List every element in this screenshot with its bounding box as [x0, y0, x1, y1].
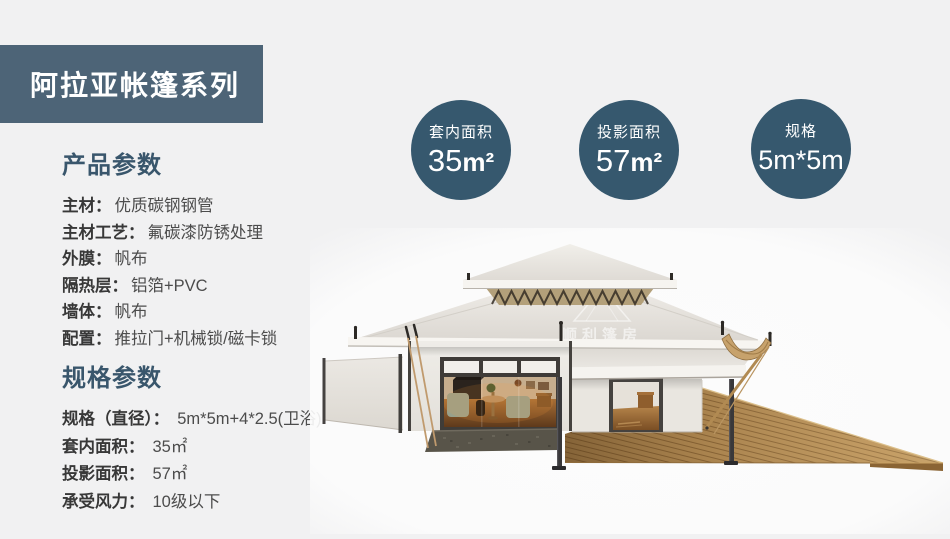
badge-specification: 规格 5m*5m [751, 99, 851, 199]
spec-params-heading: 规格参数 [62, 365, 342, 393]
param-value: 帆布 [115, 303, 148, 321]
tent-render-image: 顺利篷房 WELL TENT [310, 228, 950, 534]
param-label: 承受风力： [62, 493, 145, 511]
param-value: 35㎡ [153, 438, 188, 456]
parameters-panel: 产品参数 主材：优质碳钢钢管 主材工艺：氟碳漆防锈处理 外膜：帆布 隔热层：铝箔… [62, 152, 342, 516]
param-label: 套内面积： [62, 438, 145, 456]
tent-window [440, 357, 560, 431]
param-value: 帆布 [115, 250, 148, 268]
param-label: 配置： [62, 330, 112, 348]
tent-render-svg: 顺利篷房 WELL TENT [310, 228, 950, 534]
param-row: 外膜：帆布 [62, 246, 342, 273]
badge-unit: m² [630, 147, 662, 177]
param-value: 铝箔+PVC [131, 277, 208, 295]
param-row: 主材：优质碳钢钢管 [62, 193, 342, 220]
window-interior-scene [443, 376, 556, 427]
tent-side-wing [572, 378, 702, 432]
param-label: 主材工艺： [62, 224, 145, 242]
badge-label: 投影面积 [597, 123, 661, 143]
tent-side-panel [323, 354, 404, 433]
spec-row: 承受风力：10级以下 [62, 489, 342, 517]
badge-projection-area: 投影面积 57m² [579, 100, 679, 200]
badge-unit: m² [462, 147, 494, 177]
product-params-heading: 产品参数 [62, 152, 342, 180]
param-value: 氟碳漆防锈处理 [148, 224, 264, 242]
badge-value: 35m² [428, 143, 494, 180]
badge-number: 5m*5m [758, 145, 844, 175]
product-page: { "page": {"background": "#f1f1f2"}, "ba… [0, 0, 950, 534]
badge-value: 5m*5m [758, 142, 844, 178]
badge-number: 35 [428, 143, 462, 178]
badge-inner-area: 套内面积 35m² [411, 100, 511, 200]
series-title-banner: 阿拉亚帐篷系列 [0, 45, 263, 123]
param-row: 隔热层：铝箔+PVC [62, 273, 342, 300]
param-value: 10级以下 [153, 493, 221, 511]
param-value: 推拉门+机械锁/磁卡锁 [115, 330, 278, 348]
param-label: 投影面积： [62, 465, 145, 483]
param-label: 主材： [62, 197, 112, 215]
param-label: 规格（直径）： [62, 410, 169, 428]
badge-label: 规格 [785, 122, 817, 142]
tent-stone-base [425, 429, 558, 452]
param-row: 主材工艺：氟碳漆防锈处理 [62, 220, 342, 247]
badge-label: 套内面积 [429, 123, 493, 143]
param-label: 隔热层： [62, 277, 128, 295]
spec-row: 投影面积：57㎡ [62, 461, 342, 489]
param-label: 外膜： [62, 250, 112, 268]
doorway-interior [613, 382, 659, 430]
tent-main-wall [408, 341, 572, 452]
spec-row: 规格（直径）：5m*5m+4*2.5(卫浴) [62, 406, 342, 434]
param-value: 优质碳钢钢管 [115, 197, 214, 215]
param-row: 墙体：帆布 [62, 299, 342, 326]
param-value: 5m*5m+4*2.5(卫浴) [177, 410, 321, 428]
param-label: 墙体： [62, 303, 112, 321]
badge-value: 57m² [596, 143, 662, 180]
param-value: 57㎡ [153, 465, 188, 483]
spec-row: 套内面积：35㎡ [62, 434, 342, 462]
param-row: 配置：推拉门+机械锁/磁卡锁 [62, 326, 342, 353]
series-title: 阿拉亚帐篷系列 [30, 64, 240, 104]
badge-number: 57 [596, 143, 630, 178]
